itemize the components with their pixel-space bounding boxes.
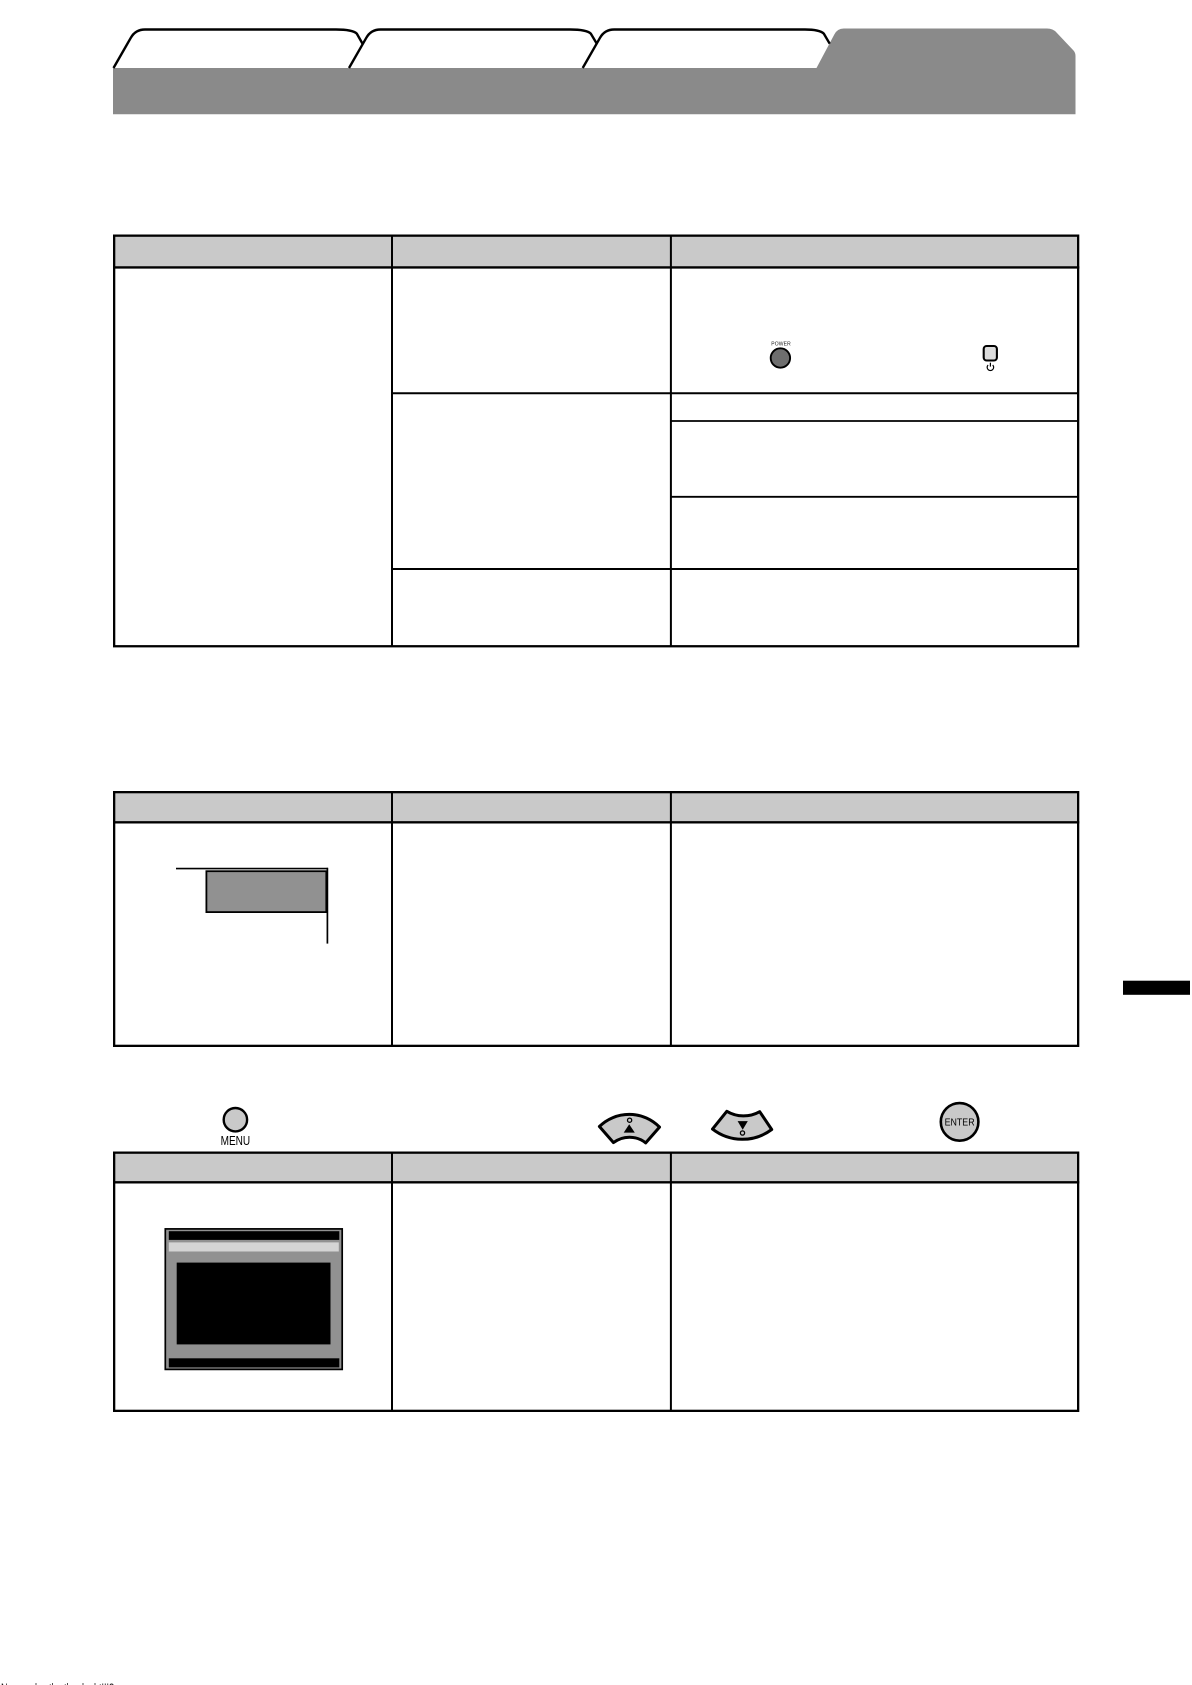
svg-text:Nam codes the the doubt!!!?: Nam codes the the doubt!!!? [1, 1681, 114, 1685]
svg-text:POWER: POWER [771, 341, 791, 347]
svg-text:ENTER: ENTER [945, 1118, 975, 1129]
svg-text:MENU: MENU [221, 1133, 251, 1148]
